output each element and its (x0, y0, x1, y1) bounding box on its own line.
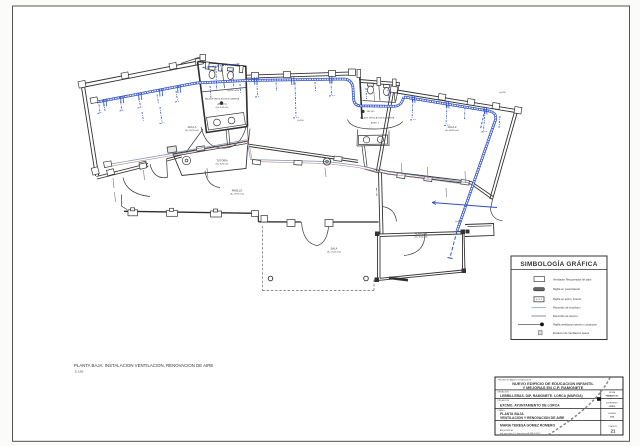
svg-text:AULA 2: AULA 2 (448, 125, 457, 129)
svg-text:SALA: SALA (331, 247, 338, 251)
svg-text:Q=250: Q=250 (297, 120, 304, 122)
svg-text:ESCALA: ESCALA (608, 412, 616, 415)
svg-text:E: 1/50: E: 1/50 (75, 370, 84, 374)
svg-text:ARQUITECTA: ARQUITECTA (500, 429, 513, 432)
svg-text:Rejilla en pared lateral: Rejilla en pared lateral (553, 287, 580, 291)
svg-text:(S= 48.35 m2): (S= 48.35 m2) (185, 130, 199, 132)
svg-text:ASEO 2: ASEO 2 (371, 122, 380, 125)
svg-text:Rejilla ventilacion aseos y co: Rejilla ventilacion aseos y conductos (553, 322, 597, 326)
svg-text:Q=250 m3/h: Q=250 m3/h (227, 90, 240, 92)
svg-text:(S= 6.40 m2): (S= 6.40 m2) (216, 107, 229, 109)
svg-text:VENTILACION Y RENOVACION DE AI: VENTILACION Y RENOVACION DE AIRE (500, 416, 565, 420)
svg-text:Q=250: Q=250 (499, 92, 506, 94)
svg-text:PROMOTOR:: PROMOTOR: (498, 400, 511, 402)
svg-text:CM/PG: CM/PG (609, 406, 616, 408)
svg-text:SIMBOLOGÍA GRÁFICA: SIMBOLOGÍA GRÁFICA (520, 259, 597, 268)
svg-text:RE 250: RE 250 (367, 111, 375, 113)
svg-text:SALA DE VENTILACION A CUBIERTA: SALA DE VENTILACION A CUBIERTA (205, 98, 240, 101)
svg-text:TUTORIA: TUTORIA (216, 159, 228, 163)
svg-text:AULA 1: AULA 1 (188, 125, 197, 129)
svg-text:Ventilador Recuperador de calo: Ventilador Recuperador de calor (553, 278, 592, 282)
svg-text:Q=150: Q=150 (455, 221, 462, 223)
svg-text:FEBRERO 03: FEBRERO 03 (606, 395, 619, 397)
svg-text:(S= 9.85 m2): (S= 9.85 m2) (216, 164, 229, 166)
svg-text:PASILLO: PASILLO (232, 189, 243, 193)
svg-text:Y MEJORAS EN C.P. RAMONETE: Y MEJORAS EN C.P. RAMONETE (523, 385, 584, 390)
svg-text:avd. juan carlos I, 5 - bajo.: avd. juan carlos I, 5 - bajo. lorca. tel… (500, 432, 540, 435)
svg-text:LEBRILLERAS. DIP. RAMONETE. LO: LEBRILLERAS. DIP. RAMONETE. LORCA (MURCI… (500, 394, 583, 398)
svg-text:(S= 9.60 m2): (S= 9.60 m2) (415, 237, 428, 239)
svg-text:EXCMO. AYUNTAMIENTO DE LORCA: EXCMO. AYUNTAMIENTO DE LORCA (500, 404, 560, 408)
svg-text:(S= 48.35 m2): (S= 48.35 m2) (445, 130, 459, 132)
svg-text:FECHA: FECHA (609, 391, 616, 394)
svg-text:SALA DE VENTILACION A CUBIERTA: SALA DE VENTILACION A CUBIERTA (360, 117, 395, 120)
svg-text:EXPEDIENTE: EXPEDIENTE (606, 403, 618, 405)
svg-text:Recorrido de impulsion: Recorrido de impulsion (553, 306, 581, 310)
svg-text:Recorrido de retorno: Recorrido de retorno (553, 314, 578, 318)
svg-text:PLANTA BAJA: INSTALACION VENTI: PLANTA BAJA: INSTALACION VENTILACION, RE… (74, 363, 213, 368)
svg-text:MARIA TERESA GOMEZ ROMERO: MARIA TERESA GOMEZ ROMERO (500, 423, 555, 427)
svg-text:(S= 28.50 m2): (S= 28.50 m2) (230, 194, 244, 196)
svg-text:ASEO 1: ASEO 1 (217, 102, 227, 106)
svg-text:Rejilla en techo. Interior: Rejilla en techo. Interior (553, 297, 581, 301)
svg-text:21: 21 (611, 429, 616, 434)
svg-text:Extractor de Ventilacion aseos: Extractor de Ventilacion aseos (553, 331, 590, 335)
svg-text:ALMACEN: ALMACEN (415, 232, 428, 236)
svg-text:(S= 25.05 m2): (S= 25.05 m2) (327, 252, 341, 254)
